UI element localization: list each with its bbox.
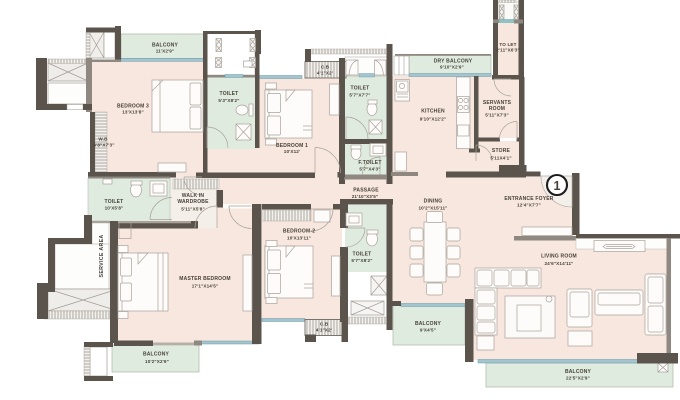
svg-text:22'5"X2'9": 22'5"X2'9" (566, 376, 590, 381)
svg-text:ROOM: ROOM (489, 106, 505, 112)
svg-text:4'8"X7'3": 4'8"X7'3" (93, 143, 114, 148)
svg-text:TOILET: TOILET (220, 91, 239, 97)
svg-text:5'7"X7'7": 5'7"X7'7" (349, 93, 370, 98)
svg-text:4'1"X2': 4'1"X2' (317, 71, 333, 76)
svg-text:LIVING ROOM: LIVING ROOM (541, 254, 577, 260)
svg-text:WARDROBE: WARDROBE (177, 199, 209, 205)
svg-text:1: 1 (554, 179, 561, 193)
svg-text:C.B: C.B (320, 322, 329, 327)
svg-text:ENTRANCE FOYER: ENTRANCE FOYER (504, 196, 553, 202)
svg-text:PASSAGE: PASSAGE (353, 188, 379, 194)
svg-text:TO LET: TO LET (499, 42, 516, 47)
svg-text:5'7"X4'3": 5'7"X4'3" (359, 167, 380, 172)
svg-text:W.B: W.B (98, 137, 108, 142)
svg-text:12'4"X7'7": 12'4"X7'7" (517, 203, 541, 208)
svg-text:2'11"X6'3": 2'11"X6'3" (496, 48, 520, 53)
svg-text:10'X5'8": 10'X5'8" (105, 206, 124, 211)
svg-text:9'X4'5": 9'X4'5" (420, 328, 436, 333)
svg-text:13'X13'8": 13'X13'8" (122, 110, 144, 115)
svg-text:9'10"X2'9": 9'10"X2'9" (440, 65, 464, 70)
svg-text:MASTER BEDROOM: MASTER BEDROOM (179, 276, 230, 282)
svg-text:10'2"X15'11": 10'2"X15'11" (418, 206, 447, 211)
svg-text:10'2"X2'9": 10'2"X2'9" (145, 359, 169, 364)
svg-text:KITCHEN: KITCHEN (421, 109, 445, 115)
svg-text:TOILET: TOILET (353, 252, 372, 258)
svg-text:4'1"X2': 4'1"X2' (316, 328, 332, 333)
svg-text:BALCONY: BALCONY (565, 369, 592, 375)
svg-text:STORE: STORE (492, 148, 511, 154)
svg-text:C.B: C.B (321, 65, 330, 70)
svg-text:BALCONY: BALCONY (143, 352, 170, 358)
svg-text:F.TOILET: F.TOILET (358, 160, 381, 166)
svg-text:10'X13'11": 10'X13'11" (287, 236, 311, 241)
svg-text:BALCONY: BALCONY (415, 321, 442, 327)
svg-text:5'11"X7'3": 5'11"X7'3" (485, 113, 509, 118)
svg-text:TOILET: TOILET (105, 199, 124, 205)
svg-text:9'10"X12'2": 9'10"X12'2" (420, 117, 447, 122)
svg-text:24'6"X14'11": 24'6"X14'11" (544, 261, 573, 266)
svg-text:5'3"X8'2": 5'3"X8'2" (218, 98, 239, 103)
svg-text:SERVICE AREA: SERVICE AREA (99, 234, 105, 277)
svg-text:5'7"X8'2": 5'7"X8'2" (351, 258, 372, 263)
svg-text:BEDROOM-2: BEDROOM-2 (283, 229, 315, 235)
svg-text:11'X2'9": 11'X2'9" (156, 49, 175, 54)
svg-text:5'11"X5'8": 5'11"X5'8" (181, 207, 205, 212)
svg-text:21'10"X3'5": 21'10"X3'5" (352, 194, 379, 199)
svg-text:5'11X4'1": 5'11X4'1" (490, 156, 511, 161)
svg-text:TOILET: TOILET (351, 86, 370, 92)
svg-text:DINING: DINING (424, 199, 443, 205)
svg-text:17'1"X14'5": 17'1"X14'5" (192, 284, 219, 289)
svg-text:10'X12': 10'X12' (284, 149, 301, 154)
